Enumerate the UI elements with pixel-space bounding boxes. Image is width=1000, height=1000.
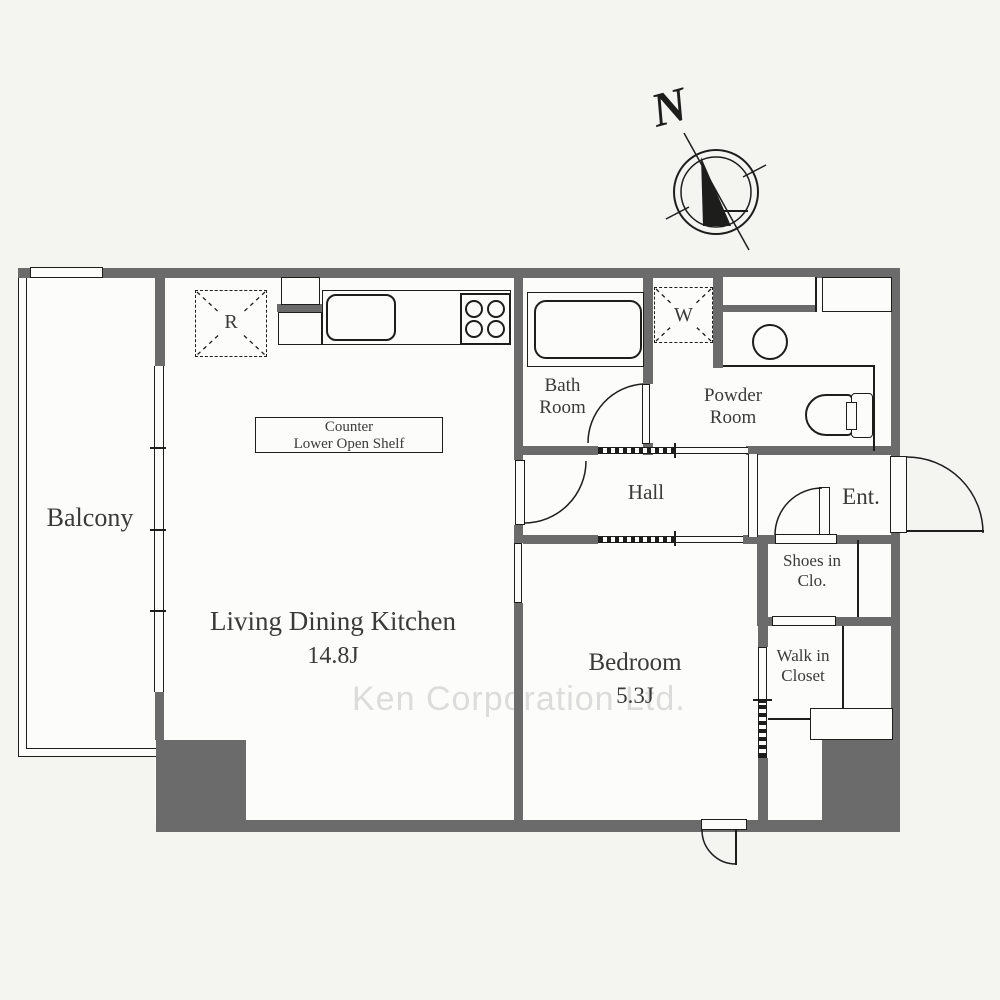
sliding-door-hall-top — [598, 447, 676, 454]
wall-block-southwest — [156, 740, 246, 832]
sliding-tick-hall-bottom — [674, 531, 676, 546]
bedroom-wall-panel — [514, 543, 522, 603]
toilet-flush — [846, 402, 857, 430]
wall-powder-niche-bar — [723, 305, 815, 312]
wall-center-top — [514, 278, 523, 460]
compass-needle — [701, 157, 731, 226]
balcony-wall-gap — [30, 267, 103, 278]
wall-hall-bottom-west — [523, 535, 598, 544]
vanity-counter-side — [873, 365, 875, 451]
entrance-step — [748, 454, 758, 537]
floor-plan: Ken Corporation Ltd. — [0, 0, 1000, 1000]
stove-burner-1 — [465, 300, 483, 318]
window-tick-3 — [150, 610, 166, 612]
kitchen-pipe-space — [281, 277, 320, 305]
entrance-label: Ent. — [826, 483, 896, 510]
stove-burner-3 — [465, 320, 483, 338]
entrance-door-arc — [907, 457, 983, 533]
bedroom-door-arc — [702, 830, 736, 864]
bath-room-label: Bath Room — [515, 375, 610, 420]
compass-north-label: N — [645, 76, 693, 138]
wall-west-upper — [155, 278, 165, 366]
wall-powder-bottom — [746, 446, 893, 455]
wall-center-bottom — [514, 603, 523, 820]
ldk-size: 14.8J — [183, 642, 483, 670]
sliding-track-hall-bottom — [676, 536, 743, 543]
sliding-track-hall-top — [676, 447, 748, 454]
bath-door-leaf — [642, 384, 650, 444]
wall-block-southeast — [822, 740, 893, 832]
shoes-closet-opening — [772, 616, 836, 626]
bedroom-door-threshold — [701, 819, 747, 830]
bedroom-label: Bedroom 5.3J — [535, 648, 735, 709]
wall-wic-left-lower — [758, 758, 768, 822]
wall-ent-bottom-east — [835, 535, 893, 544]
sliding-tick-hall-top — [674, 443, 676, 458]
wall-powder-left — [713, 277, 723, 368]
shoes-door-threshold — [775, 534, 837, 544]
kitchen-counter-left — [278, 312, 322, 345]
vanity-counter-line — [723, 365, 874, 367]
powder-room-label: Powder Room — [668, 385, 798, 430]
kitchen-sink — [326, 294, 396, 341]
washer-label: W — [654, 304, 713, 328]
wall-bottom — [246, 820, 900, 832]
powder-niche-edge — [815, 277, 817, 312]
refrigerator-label: R — [195, 311, 267, 335]
compass-icon — [666, 133, 766, 250]
counter-note-label: Counter Lower Open Shelf — [255, 419, 443, 452]
wic-step-box — [810, 708, 893, 740]
sliding-door-hall-bottom — [598, 536, 676, 543]
stove-burner-4 — [487, 320, 505, 338]
walk-in-closet-label: Walk in Closet — [743, 646, 863, 686]
wall-west-lower — [155, 692, 164, 740]
hall-label: Hall — [596, 480, 696, 505]
wall-hall-top-west — [514, 446, 598, 455]
wic-sliding-door — [758, 702, 767, 758]
bedroom-size: 5.3J — [535, 682, 735, 709]
balcony-label: Balcony — [20, 503, 160, 534]
wic-step-line — [768, 718, 810, 720]
wall-kitchen-stub — [277, 304, 322, 312]
bathtub-inner — [534, 300, 642, 359]
stove-burner-2 — [487, 300, 505, 318]
hall-door-leaf — [515, 460, 525, 525]
wic-sliding-tick — [753, 699, 772, 701]
window-tick-1 — [150, 447, 166, 449]
ldk-label: Living Dining Kitchen 14.8J — [183, 606, 483, 670]
powder-cabinet — [822, 277, 892, 312]
bedroom-door-leaf — [735, 830, 737, 865]
wall-center-mid — [514, 525, 523, 543]
entrance-door-open-leaf — [907, 530, 984, 532]
powder-niche — [723, 277, 815, 305]
wall-bath-right-upper — [643, 278, 653, 384]
wash-basin — [752, 324, 788, 360]
shoes-closet-label: Shoes in Clo. — [752, 551, 872, 591]
